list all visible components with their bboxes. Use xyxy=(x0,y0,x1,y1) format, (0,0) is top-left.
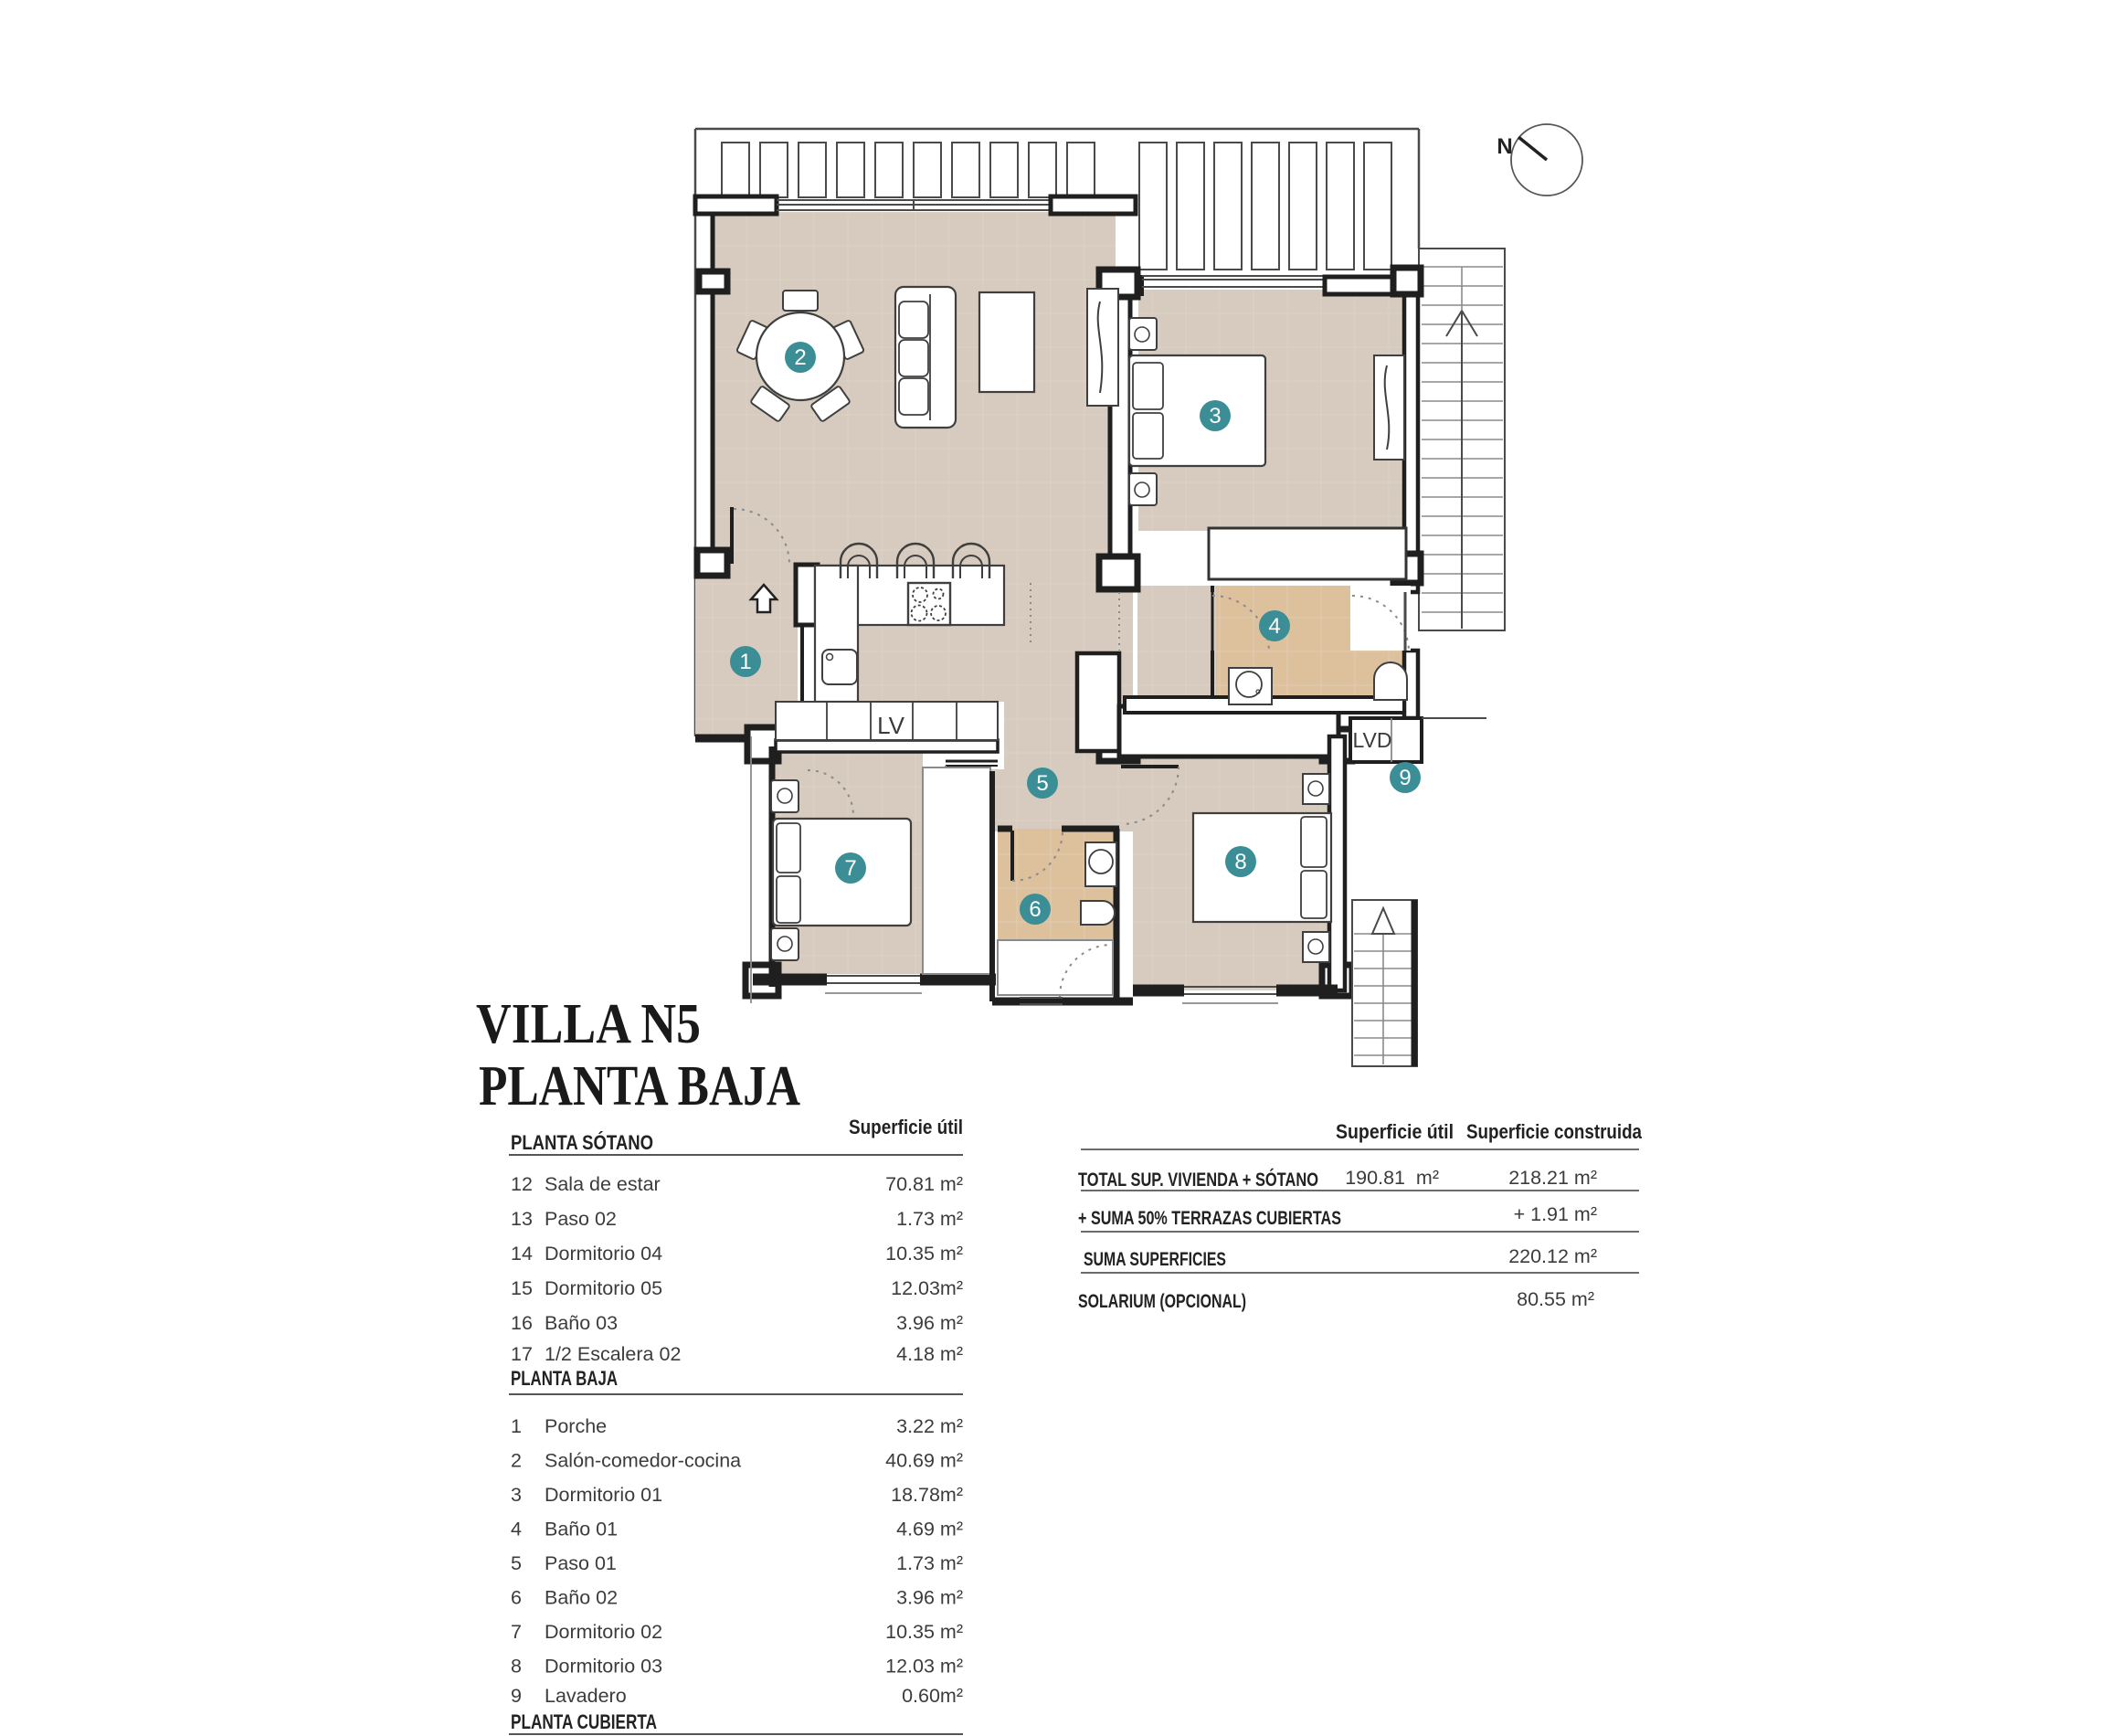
svg-text:Dormitorio 05: Dormitorio 05 xyxy=(545,1277,662,1299)
svg-text:PLANTA CUBIERTA: PLANTA CUBIERTA xyxy=(511,1710,657,1733)
svg-text:+ SUMA 50% TERRAZAS CUBIERTAS: + SUMA 50% TERRAZAS CUBIERTAS xyxy=(1078,1208,1341,1229)
svg-text:TOTAL SUP. VIVIENDA + SÓTANO: TOTAL SUP. VIVIENDA + SÓTANO xyxy=(1078,1169,1318,1191)
svg-text:Baño 02: Baño 02 xyxy=(545,1587,618,1609)
svg-text:4.18 m²: 4.18 m² xyxy=(896,1343,963,1365)
svg-text:5: 5 xyxy=(511,1552,522,1574)
svg-text:+ 1.91 m²: + 1.91 m² xyxy=(1514,1203,1597,1225)
svg-text:3.96 m²: 3.96 m² xyxy=(896,1312,963,1334)
svg-text:2: 2 xyxy=(511,1450,522,1472)
svg-text:2: 2 xyxy=(794,345,806,370)
svg-text:40.69 m²: 40.69 m² xyxy=(885,1450,963,1472)
svg-text:12: 12 xyxy=(511,1173,533,1195)
svg-text:17: 17 xyxy=(511,1343,533,1365)
svg-text:9: 9 xyxy=(511,1685,522,1707)
svg-text:Superficie útil: Superficie útil xyxy=(849,1116,963,1138)
svg-text:3.22 m²: 3.22 m² xyxy=(896,1415,963,1437)
svg-text:N: N xyxy=(1497,134,1512,159)
svg-text:12.03 m²: 12.03 m² xyxy=(885,1656,963,1678)
svg-text:9: 9 xyxy=(1399,766,1411,790)
svg-text:LV: LV xyxy=(877,712,905,739)
svg-text:Salón-comedor-cocina: Salón-comedor-cocina xyxy=(545,1450,741,1472)
svg-text:1.73 m²: 1.73 m² xyxy=(896,1208,963,1230)
svg-text:7: 7 xyxy=(511,1621,522,1643)
svg-text:1: 1 xyxy=(739,650,751,674)
svg-text:Paso 02: Paso 02 xyxy=(545,1208,617,1230)
svg-text:3.96 m²: 3.96 m² xyxy=(896,1587,963,1609)
svg-text:SUMA SUPERFICIES: SUMA SUPERFICIES xyxy=(1084,1249,1226,1270)
svg-text:1: 1 xyxy=(511,1415,522,1437)
svg-text:6: 6 xyxy=(1029,897,1041,922)
svg-text:Superficie útil: Superficie útil xyxy=(1336,1120,1454,1143)
svg-text:Sala de estar: Sala de estar xyxy=(545,1173,661,1195)
svg-text:Baño 03: Baño 03 xyxy=(545,1312,618,1334)
svg-text:PLANTA BAJA: PLANTA BAJA xyxy=(479,1055,800,1117)
svg-text:7: 7 xyxy=(844,856,856,881)
svg-text:0.60m²: 0.60m² xyxy=(902,1685,963,1707)
svg-text:218.21 m²: 218.21 m² xyxy=(1508,1167,1597,1189)
svg-text:Dormitorio 02: Dormitorio 02 xyxy=(545,1621,662,1643)
svg-text:10.35 m²: 10.35 m² xyxy=(885,1621,963,1643)
svg-text:80.55 m²: 80.55 m² xyxy=(1517,1288,1594,1310)
svg-text:3: 3 xyxy=(1209,404,1221,429)
svg-text:10.35 m²: 10.35 m² xyxy=(885,1243,963,1265)
svg-text:16: 16 xyxy=(511,1312,533,1334)
svg-text:70.81 m²: 70.81 m² xyxy=(885,1173,963,1195)
svg-text:4: 4 xyxy=(1268,614,1280,639)
svg-text:Dormitorio 04: Dormitorio 04 xyxy=(545,1243,662,1265)
svg-text:Baño 01: Baño 01 xyxy=(545,1519,618,1540)
svg-text:14: 14 xyxy=(511,1243,533,1265)
svg-text:15: 15 xyxy=(511,1277,533,1299)
svg-text:3: 3 xyxy=(511,1484,522,1506)
svg-text:Superficie construida: Superficie construida xyxy=(1466,1120,1643,1143)
svg-text:5: 5 xyxy=(1036,771,1048,796)
svg-text:18.78m²: 18.78m² xyxy=(891,1484,963,1506)
svg-text:6: 6 xyxy=(511,1587,522,1609)
svg-text:4: 4 xyxy=(511,1519,522,1540)
svg-text:190.81 m²: 190.81 m² xyxy=(1345,1167,1439,1189)
svg-text:Dormitorio 03: Dormitorio 03 xyxy=(545,1656,662,1678)
svg-text:220.12 m²: 220.12 m² xyxy=(1508,1245,1597,1267)
svg-text:Dormitorio 01: Dormitorio 01 xyxy=(545,1484,662,1506)
svg-text:LVD: LVD xyxy=(1352,728,1391,752)
svg-text:8: 8 xyxy=(511,1656,522,1678)
svg-text:PLANTA SÓTANO: PLANTA SÓTANO xyxy=(511,1131,653,1154)
svg-text:1.73 m²: 1.73 m² xyxy=(896,1552,963,1574)
svg-text:Paso 01: Paso 01 xyxy=(545,1552,617,1574)
svg-text:12.03m²: 12.03m² xyxy=(891,1277,963,1299)
svg-text:Porche: Porche xyxy=(545,1415,607,1437)
svg-text:VILLA N5: VILLA N5 xyxy=(476,993,701,1055)
svg-text:SOLARIUM (OPCIONAL): SOLARIUM (OPCIONAL) xyxy=(1078,1291,1246,1312)
svg-text:1/2 Escalera 02: 1/2 Escalera 02 xyxy=(545,1343,681,1365)
svg-text:4.69 m²: 4.69 m² xyxy=(896,1519,963,1540)
svg-text:Lavadero: Lavadero xyxy=(545,1685,627,1707)
svg-text:13: 13 xyxy=(511,1208,533,1230)
svg-text:8: 8 xyxy=(1234,850,1246,874)
svg-text:PLANTA BAJA: PLANTA BAJA xyxy=(511,1367,618,1390)
